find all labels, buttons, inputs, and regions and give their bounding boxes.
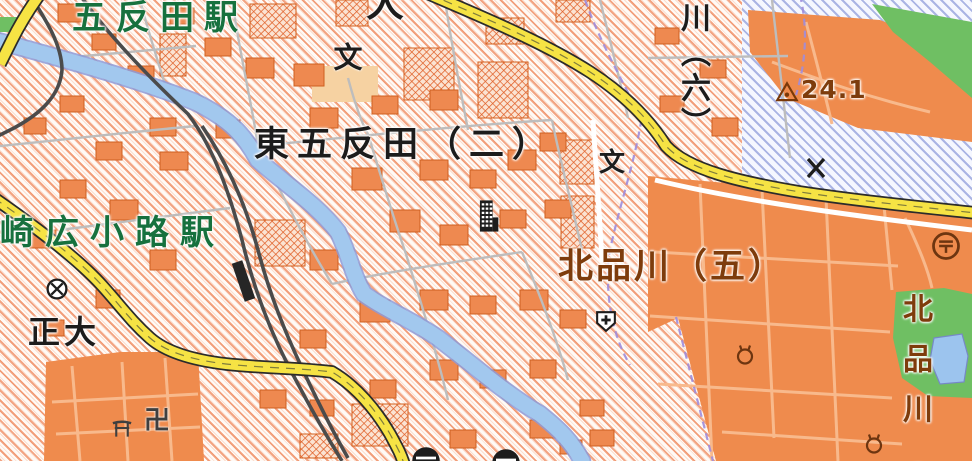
map-canvas[interactable]: 文文卍 五反田駅崎広小路駅東五反田（二）北品川（五）正大大川（六）北品川（24.… <box>0 0 972 461</box>
top-edge-partial-label: 大 <box>366 0 404 22</box>
district-kita-shinagawa-vertical-label: 北品川（ <box>899 293 929 461</box>
district-kita-shinagawa-5-label: 北品川（五） <box>558 250 786 285</box>
district-kawa-6-label: 川（六） <box>677 2 707 142</box>
spot-elevation-label: 24.1 <box>801 77 867 102</box>
station-gotanda-label: 五反田駅 <box>72 1 248 35</box>
district-higashi-gotanda-2-label: 東五反田（二） <box>254 128 555 163</box>
station-osaki-hirokoji-label: 崎広小路駅 <box>0 216 225 250</box>
map-labels: 五反田駅崎広小路駅東五反田（二）北品川（五）正大大川（六）北品川（24.1 <box>0 0 972 461</box>
rissho-univ-partial-label: 正大 <box>28 316 100 348</box>
